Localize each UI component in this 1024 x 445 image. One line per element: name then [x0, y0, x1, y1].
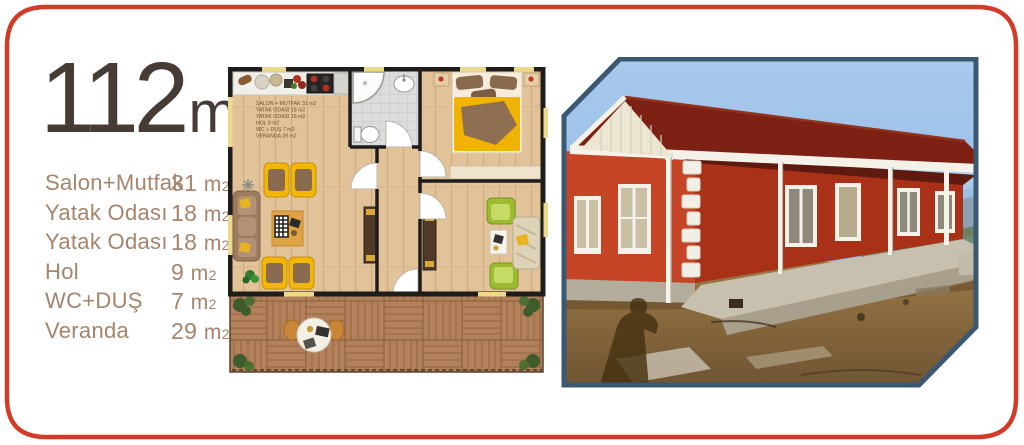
- room-row: Yatak Odası 18 m2: [45, 200, 245, 230]
- room-area: 9 m2: [171, 259, 217, 286]
- toilet: [354, 127, 379, 143]
- room-area: 18 m2: [171, 229, 230, 256]
- house-photo: [561, 57, 979, 388]
- room-area: 18 m2: [171, 200, 230, 227]
- room-list: Salon+Mutfak 31 m2 Yatak Odası 18 m2 Yat…: [45, 170, 245, 348]
- room-row: Salon+Mutfak 31 m2: [45, 170, 245, 200]
- area-number: 112: [40, 42, 184, 154]
- floor-plan-drawing: SALON + MUTFAK 31 m2 YATAK ODASI 18 m2 Y…: [228, 67, 548, 377]
- room-label: Veranda: [45, 318, 129, 344]
- veranda: [230, 294, 543, 372]
- dresser: [450, 166, 541, 179]
- plan-legend-line: VERANDA 29 m2: [256, 134, 297, 140]
- room-row: Hol 9 m2: [45, 259, 245, 289]
- room-row: WC+DUŞ 7 m2: [45, 288, 245, 318]
- room-row: Veranda 29 m2: [45, 318, 245, 348]
- wardrobe: [364, 207, 377, 263]
- rug-checker: [275, 216, 288, 237]
- room-label: Salon+Mutfak: [45, 170, 184, 196]
- room-label: WC+DUŞ: [45, 288, 143, 314]
- room-area: 7 m2: [171, 288, 217, 315]
- foundation: [563, 279, 695, 303]
- plan-legend-line: SALON + MUTFAK 31 m2: [256, 101, 317, 107]
- plan-legend-line: YATAK ODASI 18 m2: [256, 108, 305, 114]
- page-title: 112m2: [40, 48, 253, 148]
- brochure-canvas: 112m2 Salon+Mutfak 31 m2 Yatak Odası 18 …: [0, 0, 1024, 445]
- plan-legend-line: HOL 9 m2: [256, 121, 280, 127]
- room-label: Hol: [45, 259, 79, 285]
- plan-legend-line: WC + DUŞ 7 m2: [256, 127, 295, 133]
- room-row: Yatak Odası 18 m2: [45, 229, 245, 259]
- plan-legend-line: YATAK ODASI 18 m2: [256, 114, 305, 120]
- room-label: Yatak Odası: [45, 229, 168, 255]
- floor-plan: SALON + MUTFAK 31 m2 YATAK ODASI 18 m2 Y…: [228, 67, 548, 377]
- kitchen-counter: [233, 72, 349, 95]
- house-photo-drawing: [561, 57, 979, 388]
- room-area: 29 m2: [171, 318, 230, 345]
- room-label: Yatak Odası: [45, 200, 168, 226]
- room-area: 31 m2: [171, 170, 230, 197]
